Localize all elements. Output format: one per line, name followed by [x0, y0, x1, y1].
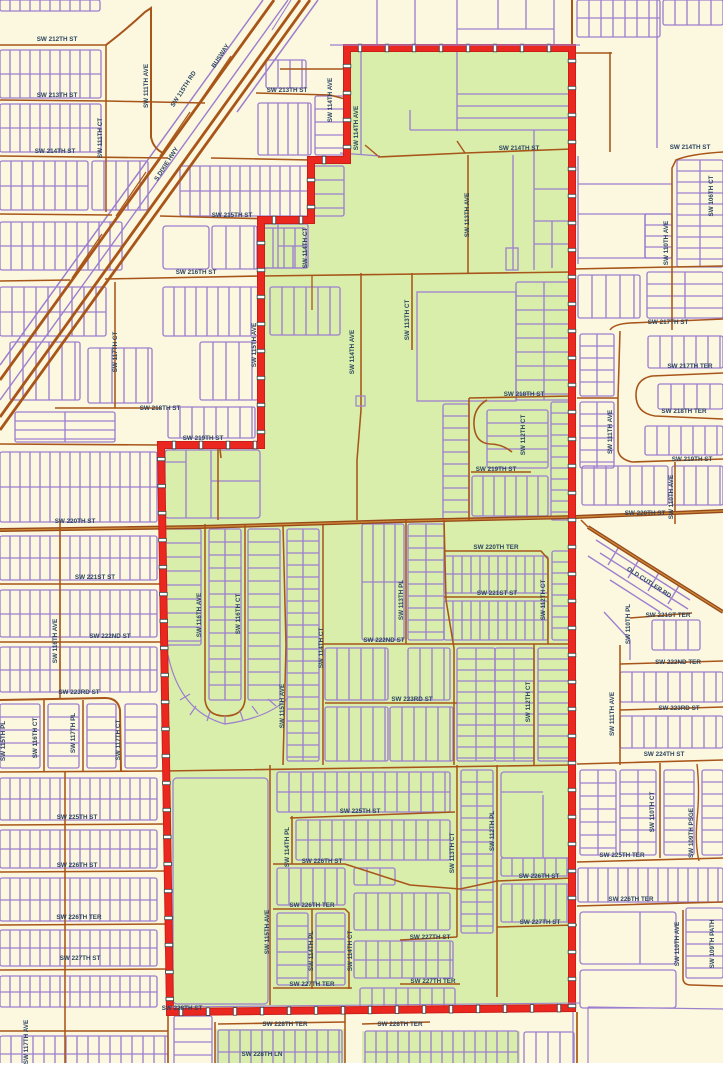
svg-text:SW 114TH AVE: SW 114TH AVE	[327, 78, 334, 122]
svg-text:SW 111TH AVE: SW 111TH AVE	[143, 64, 150, 108]
svg-text:SW 113TH PL: SW 113TH PL	[398, 580, 405, 620]
svg-text:SW 226TH ST: SW 226TH ST	[57, 862, 98, 869]
svg-text:SW 227TH ST: SW 227TH ST	[410, 934, 451, 941]
svg-text:SW 227TH ST: SW 227TH ST	[520, 919, 561, 926]
svg-text:SW 112TH PL: SW 112TH PL	[489, 811, 496, 851]
svg-text:SW 111TH AVE: SW 111TH AVE	[609, 692, 616, 736]
svg-text:SW 214TH ST: SW 214TH ST	[670, 144, 711, 151]
svg-text:SW 111TH AVE: SW 111TH AVE	[607, 410, 614, 454]
svg-text:SW 222ND ST: SW 222ND ST	[89, 633, 130, 640]
svg-text:SW 212TH ST: SW 212TH ST	[37, 36, 78, 43]
svg-text:SW 113TH CT: SW 113TH CT	[449, 833, 456, 874]
svg-text:SW 226TH TER: SW 226TH TER	[289, 902, 335, 909]
svg-text:SW 228TH TER: SW 228TH TER	[377, 1021, 423, 1028]
svg-text:SW 227TH TER: SW 227TH TER	[289, 981, 335, 988]
svg-text:SW 110TH AVE: SW 110TH AVE	[663, 221, 670, 265]
svg-text:SW 116TH AVE: SW 116TH AVE	[196, 593, 203, 637]
svg-text:SW 220TH ST: SW 220TH ST	[625, 510, 666, 517]
svg-text:SW 114TH PL: SW 114TH PL	[308, 931, 315, 971]
svg-text:SW 219TH ST: SW 219TH ST	[476, 466, 517, 473]
svg-text:SW 112TH CT: SW 112TH CT	[540, 580, 547, 621]
svg-text:SW 218TH ST: SW 218TH ST	[140, 405, 181, 412]
svg-text:SW 226TH TER: SW 226TH TER	[608, 896, 654, 903]
svg-text:SW 228TH ST: SW 228TH ST	[162, 1005, 203, 1012]
svg-text:SW 217TH ST: SW 217TH ST	[648, 319, 689, 326]
svg-text:SW 218TH ST: SW 218TH ST	[504, 391, 545, 398]
svg-text:SW 220TH TER: SW 220TH TER	[473, 544, 519, 551]
svg-text:SW 226TH ST: SW 226TH ST	[302, 858, 343, 865]
svg-text:SW 116TH CT: SW 116TH CT	[235, 594, 242, 635]
svg-text:SW 213TH ST: SW 213TH ST	[267, 87, 308, 94]
svg-text:SW 117TH CT: SW 117TH CT	[115, 720, 122, 761]
svg-text:SW 220TH ST: SW 220TH ST	[55, 518, 96, 525]
svg-text:SW 110TH PL: SW 110TH PL	[625, 604, 632, 644]
svg-text:SW 223RD ST: SW 223RD ST	[391, 696, 432, 703]
svg-text:SW 225TH TER: SW 225TH TER	[599, 852, 645, 859]
svg-text:SW 117TH CT: SW 117TH CT	[112, 332, 119, 373]
svg-text:SW 115TH AVE: SW 115TH AVE	[264, 910, 271, 954]
svg-text:SW 115TH AVE: SW 115TH AVE	[279, 684, 286, 728]
svg-text:SW 228TH TER: SW 228TH TER	[262, 1021, 308, 1028]
svg-text:SW 114TH PL: SW 114TH PL	[284, 827, 291, 867]
svg-text:SW 116TH AVE: SW 116TH AVE	[52, 619, 59, 663]
svg-text:SW 226TH ST: SW 226TH ST	[519, 873, 560, 880]
svg-text:SW 110TH AVE: SW 110TH AVE	[674, 922, 681, 966]
svg-text:SW 114TH CT: SW 114TH CT	[347, 931, 354, 972]
svg-text:SW 227TH ST: SW 227TH ST	[60, 955, 101, 962]
svg-text:SW 216TH ST: SW 216TH ST	[176, 269, 217, 276]
svg-text:SW 110TH AVE: SW 110TH AVE	[668, 475, 675, 519]
svg-text:SW 222ND TER: SW 222ND TER	[655, 659, 701, 666]
svg-text:SW 214TH ST: SW 214TH ST	[499, 145, 540, 152]
svg-text:SW 113TH AVE: SW 113TH AVE	[464, 193, 471, 237]
svg-text:SW 214TH ST: SW 214TH ST	[35, 148, 76, 155]
svg-text:SW 114TH AVE: SW 114TH AVE	[353, 106, 360, 150]
svg-text:SW 117TH AVE: SW 117TH AVE	[23, 1020, 30, 1064]
svg-text:SW 225TH ST: SW 225TH ST	[57, 814, 98, 821]
svg-text:SW 224TH ST: SW 224TH ST	[644, 751, 685, 758]
svg-text:SW 113TH CT: SW 113TH CT	[404, 300, 411, 341]
svg-text:SW 115TH PL: SW 115TH PL	[0, 721, 7, 761]
svg-text:SW 217TH TER: SW 217TH TER	[667, 363, 713, 370]
svg-text:SW 116TH CT: SW 116TH CT	[32, 718, 39, 759]
svg-text:SW 222ND ST: SW 222ND ST	[363, 637, 404, 644]
svg-text:SW 110TH CT: SW 110TH CT	[649, 792, 656, 833]
svg-text:SW 114TH CT: SW 114TH CT	[302, 228, 309, 269]
svg-text:SW 215TH ST: SW 215TH ST	[212, 212, 253, 219]
svg-text:SW 114TH AVE: SW 114TH AVE	[349, 330, 356, 374]
svg-text:SW 109TH PSGE: SW 109TH PSGE	[688, 808, 695, 858]
svg-text:SW 228TH LN: SW 228TH LN	[242, 1051, 283, 1058]
svg-text:SW 226TH TER: SW 226TH TER	[56, 914, 102, 921]
svg-text:SW 221ST ST: SW 221ST ST	[477, 590, 517, 597]
svg-text:SW 111TH CT: SW 111TH CT	[97, 118, 104, 158]
svg-text:SW 106TH CT: SW 106TH CT	[708, 175, 715, 216]
svg-text:SW 225TH ST: SW 225TH ST	[340, 808, 381, 815]
svg-text:SW 221ST TER: SW 221ST TER	[646, 612, 691, 619]
svg-text:SW 218TH TER: SW 218TH TER	[661, 408, 707, 415]
svg-text:SW 112TH CT: SW 112TH CT	[520, 415, 527, 456]
svg-text:SW 219TH ST: SW 219TH ST	[672, 456, 713, 463]
svg-text:SW 115TH AVE: SW 115TH AVE	[251, 323, 258, 367]
svg-text:SW 117TH PL: SW 117TH PL	[70, 713, 77, 753]
svg-text:SW 112TH CT: SW 112TH CT	[525, 682, 532, 723]
svg-text:SW 219TH ST: SW 219TH ST	[183, 435, 224, 442]
svg-text:SW 223RD ST: SW 223RD ST	[658, 705, 699, 712]
svg-text:SW 109TH PATH: SW 109TH PATH	[709, 919, 716, 968]
svg-text:SW 223RD ST: SW 223RD ST	[58, 689, 99, 696]
svg-text:SW 221ST ST: SW 221ST ST	[75, 574, 115, 581]
svg-text:SW 114TH CT: SW 114TH CT	[318, 628, 325, 669]
svg-text:SW 213TH ST: SW 213TH ST	[37, 92, 78, 99]
svg-text:SW 227TH TER: SW 227TH TER	[410, 978, 456, 985]
